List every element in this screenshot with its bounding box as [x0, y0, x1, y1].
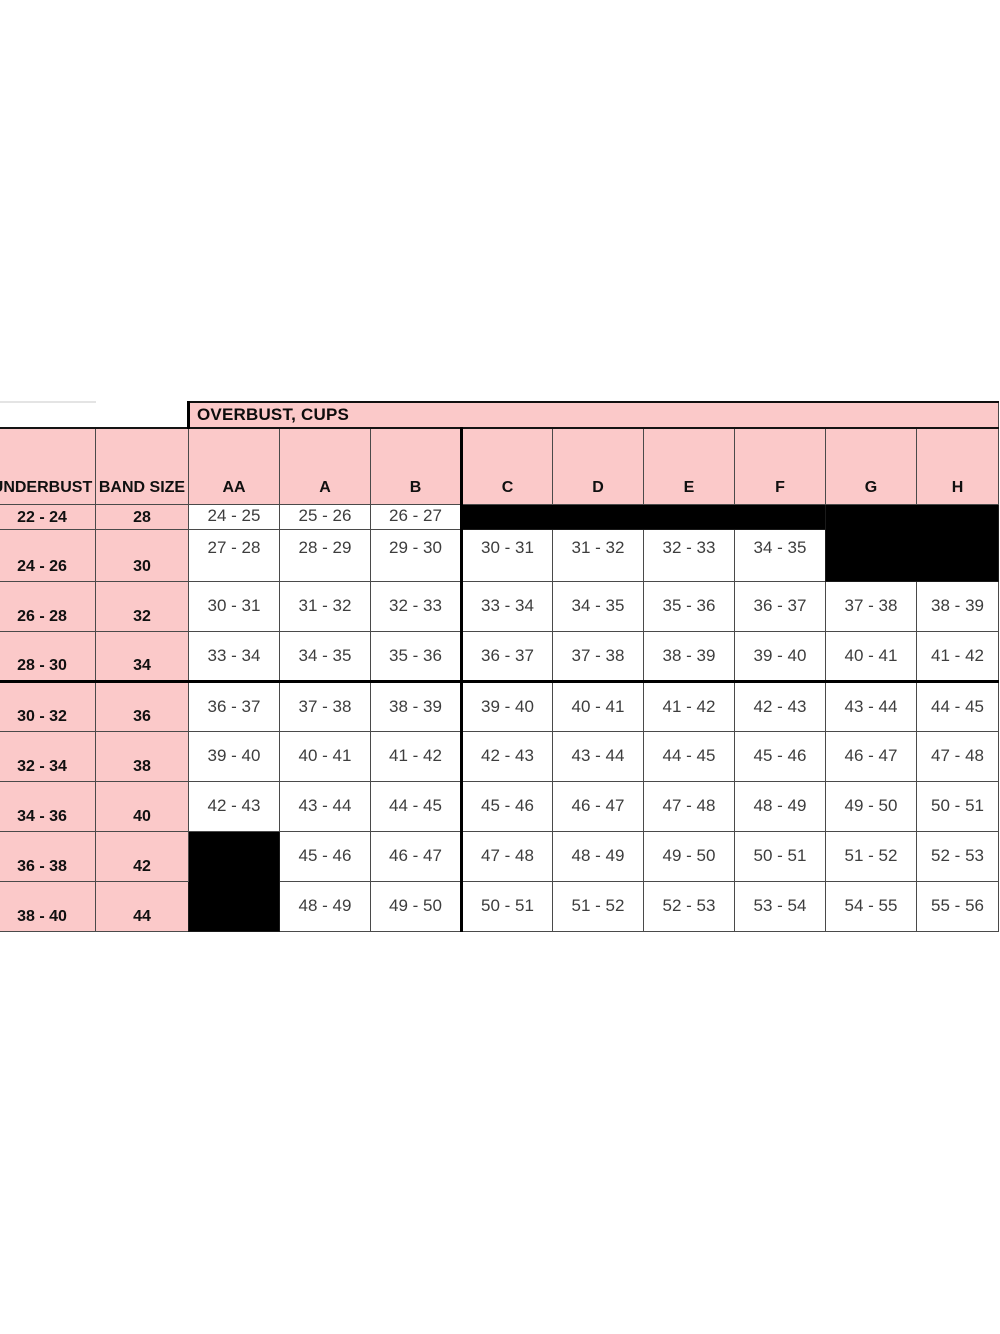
size-row: 30 - 323636 - 3737 - 3838 - 3939 - 4040 … — [0, 681, 999, 731]
blank-cell — [0, 402, 96, 428]
overbust-range-cell: 43 - 44 — [826, 681, 917, 731]
overbust-range-cell: 39 - 40 — [462, 681, 553, 731]
overbust-range-cell: 44 - 45 — [644, 731, 735, 781]
band-size-cell: 32 — [96, 581, 189, 631]
col-header-cup-g: G — [826, 428, 917, 504]
band-size-cell: 30 — [96, 529, 189, 581]
col-header-cup-b: B — [371, 428, 462, 504]
overbust-range-cell: 30 - 31 — [189, 581, 280, 631]
overbust-range-cell: 29 - 30 — [371, 529, 462, 581]
overbust-range-cell: 53 - 54 — [735, 881, 826, 931]
size-row: 28 - 303433 - 3434 - 3535 - 3636 - 3737 … — [0, 631, 999, 681]
overbust-range-cell: 41 - 42 — [917, 631, 999, 681]
overbust-range-cell: 37 - 38 — [280, 681, 371, 731]
overbust-range-cell: 47 - 48 — [644, 781, 735, 831]
overbust-range-cell: 50 - 51 — [462, 881, 553, 931]
col-header-cup-f: F — [735, 428, 826, 504]
overbust-range-cell: 48 - 49 — [280, 881, 371, 931]
underbust-range-cell: 30 - 32 — [0, 681, 96, 731]
band-size-cell: 38 — [96, 731, 189, 781]
underbust-range-cell: 22 - 24 — [0, 504, 96, 529]
overbust-range-cell: 31 - 32 — [553, 529, 644, 581]
overbust-range-cell: 38 - 39 — [644, 631, 735, 681]
underbust-range-cell: 26 - 28 — [0, 581, 96, 631]
col-header-band-size: BAND SIZE — [96, 428, 189, 504]
overbust-range-cell: 41 - 42 — [644, 681, 735, 731]
band-size-cell: 34 — [96, 631, 189, 681]
overbust-range-cell: 26 - 27 — [371, 504, 462, 529]
overbust-range-cell: 40 - 41 — [553, 681, 644, 731]
blackout-cell — [189, 831, 280, 931]
page: OVERBUST, CUPS UNDERBUST BAND SIZE AA A … — [0, 0, 1000, 1334]
overbust-range-cell: 47 - 48 — [462, 831, 553, 881]
underbust-range-cell: 32 - 34 — [0, 731, 96, 781]
col-header-cup-e: E — [644, 428, 735, 504]
overbust-range-cell: 31 - 32 — [280, 581, 371, 631]
size-row: 36 - 384245 - 4646 - 4747 - 4848 - 4949 … — [0, 831, 999, 881]
overbust-range-cell: 49 - 50 — [644, 831, 735, 881]
overbust-range-cell: 30 - 31 — [462, 529, 553, 581]
overbust-range-cell: 25 - 26 — [280, 504, 371, 529]
overbust-range-cell: 45 - 46 — [280, 831, 371, 881]
overbust-range-cell: 49 - 50 — [826, 781, 917, 831]
overbust-range-cell: 33 - 34 — [189, 631, 280, 681]
overbust-range-cell: 40 - 41 — [826, 631, 917, 681]
band-size-cell: 40 — [96, 781, 189, 831]
overbust-range-cell: 28 - 29 — [280, 529, 371, 581]
overbust-range-cell: 42 - 43 — [735, 681, 826, 731]
overbust-range-cell: 36 - 37 — [189, 681, 280, 731]
overbust-range-cell: 38 - 39 — [371, 681, 462, 731]
size-row: 26 - 283230 - 3131 - 3232 - 3333 - 3434 … — [0, 581, 999, 631]
col-header-cup-a: A — [280, 428, 371, 504]
underbust-range-cell: 38 - 40 — [0, 881, 96, 931]
overbust-range-cell: 24 - 25 — [189, 504, 280, 529]
size-row: 22 - 242824 - 2525 - 2626 - 27 — [0, 504, 999, 529]
col-header-cup-d: D — [553, 428, 644, 504]
overbust-range-cell: 42 - 43 — [462, 731, 553, 781]
overbust-header-row: OVERBUST, CUPS — [0, 402, 999, 428]
overbust-range-cell: 42 - 43 — [189, 781, 280, 831]
size-row: 38 - 404448 - 4949 - 5050 - 5151 - 5252 … — [0, 881, 999, 931]
overbust-range-cell: 50 - 51 — [735, 831, 826, 881]
overbust-range-cell: 35 - 36 — [644, 581, 735, 631]
overbust-range-cell: 32 - 33 — [371, 581, 462, 631]
underbust-range-cell: 36 - 38 — [0, 831, 96, 881]
overbust-range-cell: 48 - 49 — [735, 781, 826, 831]
overbust-title: OVERBUST, CUPS — [189, 402, 999, 428]
overbust-range-cell: 41 - 42 — [371, 731, 462, 781]
band-size-cell: 42 — [96, 831, 189, 881]
overbust-range-cell: 35 - 36 — [371, 631, 462, 681]
overbust-range-cell: 51 - 52 — [826, 831, 917, 881]
overbust-range-cell: 37 - 38 — [826, 581, 917, 631]
overbust-range-cell: 44 - 45 — [371, 781, 462, 831]
overbust-range-cell: 37 - 38 — [553, 631, 644, 681]
overbust-range-cell: 32 - 33 — [644, 529, 735, 581]
overbust-range-cell: 46 - 47 — [553, 781, 644, 831]
blackout-cell — [826, 504, 999, 581]
underbust-range-cell: 34 - 36 — [0, 781, 96, 831]
overbust-range-cell: 47 - 48 — [917, 731, 999, 781]
bra-size-chart: OVERBUST, CUPS UNDERBUST BAND SIZE AA A … — [0, 401, 999, 932]
band-size-cell: 36 — [96, 681, 189, 731]
overbust-range-cell: 52 - 53 — [917, 831, 999, 881]
size-table-body: 22 - 242824 - 2525 - 2626 - 2724 - 26302… — [0, 504, 999, 931]
overbust-range-cell: 38 - 39 — [917, 581, 999, 631]
overbust-range-cell: 44 - 45 — [917, 681, 999, 731]
overbust-range-cell: 43 - 44 — [553, 731, 644, 781]
overbust-range-cell: 34 - 35 — [553, 581, 644, 631]
blackout-cell — [462, 504, 826, 529]
overbust-range-cell: 48 - 49 — [553, 831, 644, 881]
overbust-range-cell: 39 - 40 — [189, 731, 280, 781]
overbust-range-cell: 50 - 51 — [917, 781, 999, 831]
underbust-range-cell: 24 - 26 — [0, 529, 96, 581]
col-header-cup-aa: AA — [189, 428, 280, 504]
overbust-range-cell: 39 - 40 — [735, 631, 826, 681]
overbust-range-cell: 51 - 52 — [553, 881, 644, 931]
overbust-range-cell: 45 - 46 — [462, 781, 553, 831]
column-header-row: UNDERBUST BAND SIZE AA A B C D E F G H — [0, 428, 999, 504]
size-row: 34 - 364042 - 4343 - 4444 - 4545 - 4646 … — [0, 781, 999, 831]
overbust-range-cell: 27 - 28 — [189, 529, 280, 581]
size-row: 32 - 343839 - 4040 - 4141 - 4242 - 4343 … — [0, 731, 999, 781]
underbust-range-cell: 28 - 30 — [0, 631, 96, 681]
col-header-underbust: UNDERBUST — [0, 428, 96, 504]
overbust-range-cell: 45 - 46 — [735, 731, 826, 781]
overbust-range-cell: 36 - 37 — [735, 581, 826, 631]
overbust-range-cell: 34 - 35 — [280, 631, 371, 681]
overbust-range-cell: 46 - 47 — [826, 731, 917, 781]
overbust-range-cell: 52 - 53 — [644, 881, 735, 931]
overbust-range-cell: 33 - 34 — [462, 581, 553, 631]
overbust-range-cell: 36 - 37 — [462, 631, 553, 681]
overbust-range-cell: 54 - 55 — [826, 881, 917, 931]
col-header-cup-h: H — [917, 428, 999, 504]
overbust-range-cell: 40 - 41 — [280, 731, 371, 781]
overbust-range-cell: 43 - 44 — [280, 781, 371, 831]
band-size-cell: 44 — [96, 881, 189, 931]
overbust-range-cell: 34 - 35 — [735, 529, 826, 581]
overbust-range-cell: 49 - 50 — [371, 881, 462, 931]
blank-cell — [96, 402, 189, 428]
col-header-cup-c: C — [462, 428, 553, 504]
band-size-cell: 28 — [96, 504, 189, 529]
overbust-range-cell: 55 - 56 — [917, 881, 999, 931]
overbust-range-cell: 46 - 47 — [371, 831, 462, 881]
